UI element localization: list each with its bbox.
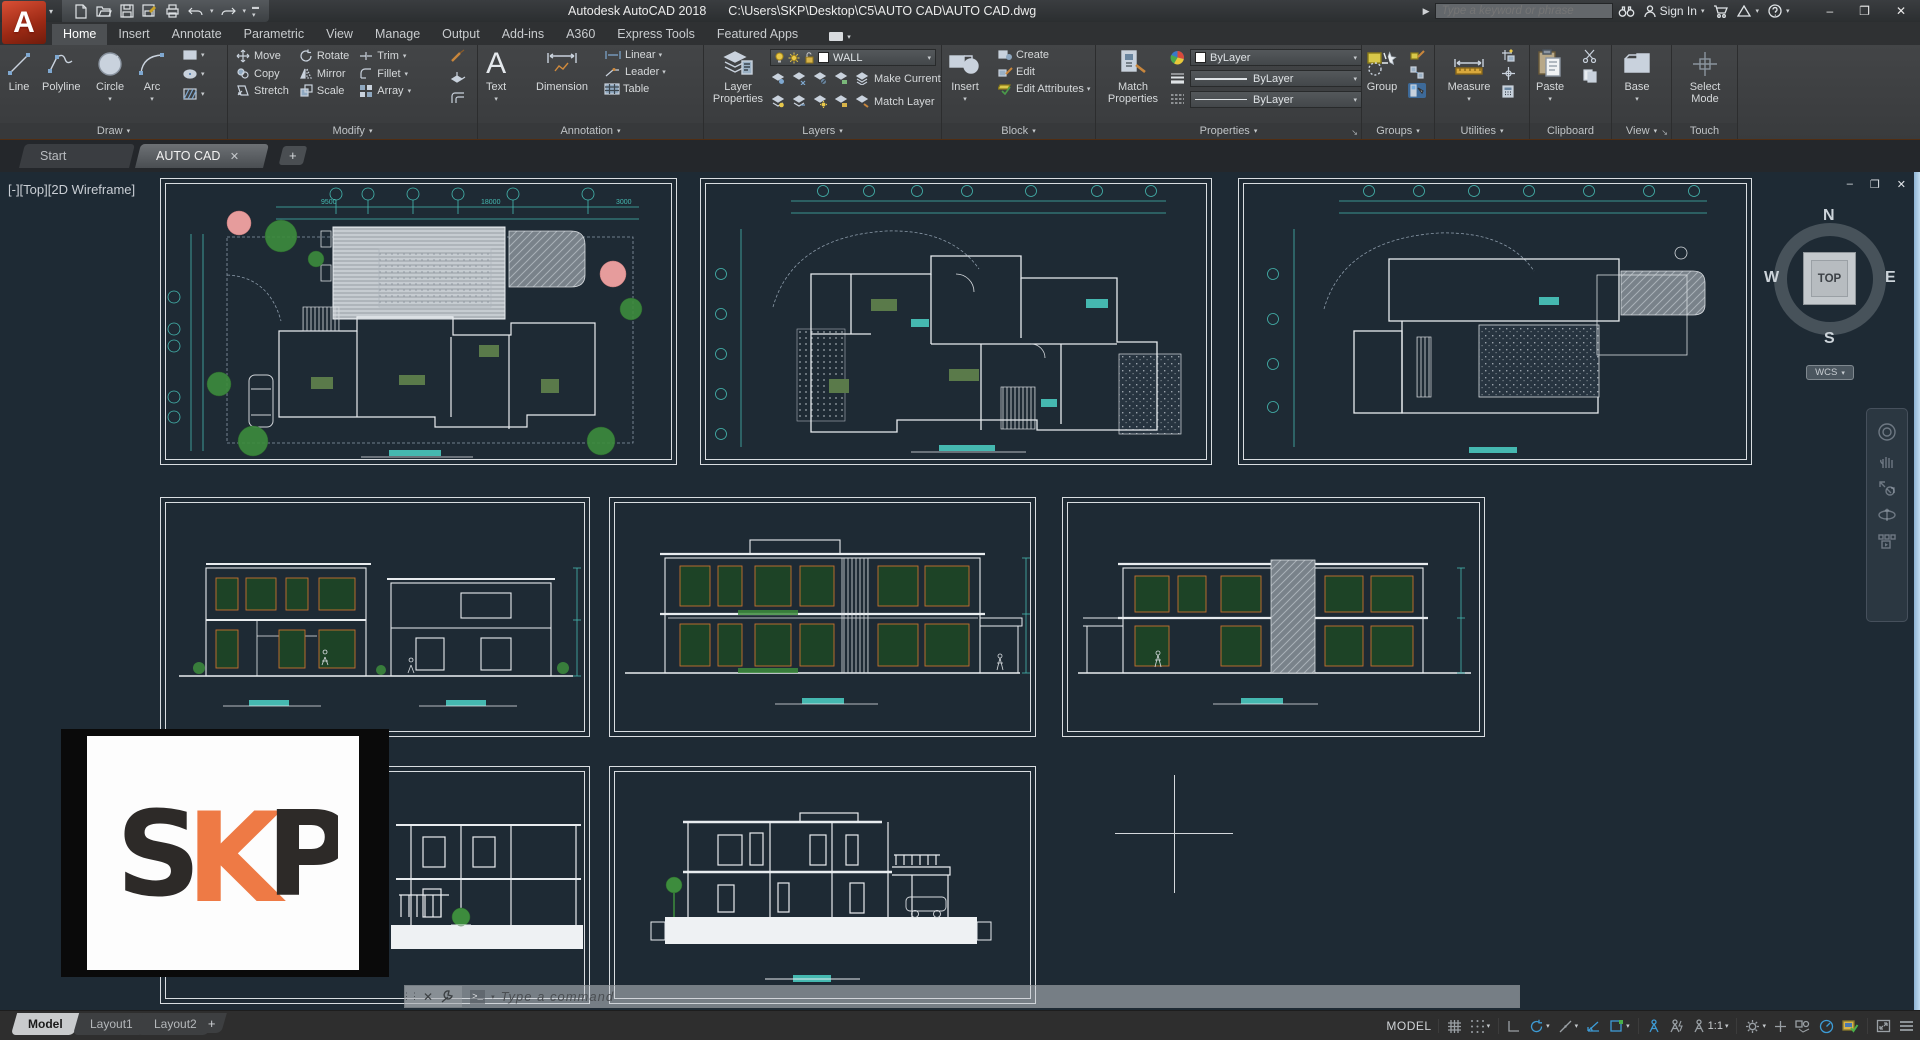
hatch-icon [182, 87, 198, 101]
ellipse-icon [182, 68, 198, 80]
color-wheel-icon [1170, 50, 1185, 65]
plus-icon [1774, 1020, 1787, 1033]
copy-clip-button[interactable] [1583, 69, 1597, 83]
open-file-button[interactable] [95, 3, 112, 19]
redo-icon [220, 5, 236, 18]
linear-label: Linear [625, 49, 656, 61]
lineweight-icon [1170, 72, 1185, 85]
tab-home[interactable]: Home [52, 24, 107, 45]
measure-label: Measure [1448, 81, 1491, 93]
panel-properties-label[interactable]: Properties▾↘ [1096, 123, 1361, 139]
site-plan-drawing: 9500 18000 3000 [161, 179, 678, 466]
panel-groups: Group Groups▾ [1362, 45, 1435, 139]
clean-screen-button[interactable] [1876, 1019, 1891, 1033]
linetype-icon [1170, 93, 1185, 106]
pan-hand-icon[interactable] [1877, 452, 1897, 470]
grid-icon [1447, 1019, 1462, 1034]
create-block-label: Create [1016, 49, 1049, 61]
command-input[interactable]: >_ ▾ Type a command [462, 989, 622, 1004]
search-expand-button[interactable]: ▶ [1423, 6, 1430, 17]
clipboard-label-text: Clipboard [1547, 125, 1594, 137]
trim-button[interactable]: Trim▾ [359, 49, 411, 63]
edit-block-label: Edit [1016, 66, 1035, 78]
circle-icon [96, 48, 124, 80]
line-button[interactable]: Line [6, 48, 32, 93]
frame-first-floor-plan[interactable] [1238, 178, 1752, 465]
layer-isolate-button[interactable] [772, 72, 785, 85]
annotation-scale-button[interactable]: 1:1▾ [1692, 1019, 1729, 1034]
group-button[interactable]: Group [1366, 48, 1398, 93]
drawing-canvas[interactable]: [-][Top][2D Wireframe] – ❐ ✕ [0, 172, 1920, 1010]
rotate-label: Rotate [317, 50, 349, 62]
copy-button[interactable]: Copy [236, 67, 289, 80]
ungroup-button[interactable] [1410, 66, 1425, 79]
measure-button[interactable]: Measure▾ [1443, 48, 1495, 106]
layer-lock-icon [835, 72, 848, 85]
window-minimize-button[interactable]: – [1826, 4, 1833, 18]
group-label: Group [1367, 81, 1398, 93]
ribbon-display-toggle[interactable]: ▾ [823, 30, 857, 45]
circle-button[interactable]: Circle▾ [96, 48, 124, 106]
cart-icon [1713, 5, 1728, 18]
offset-button[interactable] [450, 91, 466, 105]
customization-menu-icon [1899, 1020, 1914, 1032]
panel-touch-label[interactable]: Touch [1672, 123, 1737, 139]
panel-modify-label[interactable]: Modify▾ [228, 123, 477, 139]
command-bar-grip[interactable]: ⋮⋮ [405, 986, 415, 1007]
layout2-tab-label: Layout2 [154, 1017, 197, 1031]
drawing-minimize-button[interactable]: – [1847, 178, 1853, 191]
id-point-button[interactable] [1502, 67, 1515, 80]
viewcube-west[interactable]: W [1764, 269, 1779, 287]
ungroup-icon [1410, 66, 1425, 79]
lineweight-dropdown[interactable]: ByLayer▾ [1190, 70, 1362, 87]
panel-touch: Select Mode Touch [1672, 45, 1738, 139]
clean-screen-icon [1876, 1019, 1891, 1033]
svg-text:9500: 9500 [321, 199, 337, 206]
properties-dialog-launcher[interactable]: ↘ [1351, 128, 1358, 137]
edit-attributes-label: Edit Attributes [1016, 83, 1084, 95]
base-view-icon [1622, 48, 1652, 80]
viewcube-east[interactable]: E [1885, 269, 1896, 287]
table-button[interactable]: Table [604, 83, 649, 95]
explode-icon [450, 70, 466, 84]
dimension-label: Dimension [536, 81, 588, 93]
create-block-icon [998, 49, 1013, 61]
layer-thaw-sun-button[interactable] [814, 95, 827, 108]
rotate-button[interactable]: Rotate [299, 49, 349, 63]
copy-pages-icon [1583, 69, 1597, 83]
select-mode-label: Select Mode [1680, 81, 1730, 105]
layer-freeze-icon [793, 72, 806, 85]
table-icon [604, 83, 620, 95]
panel-draw-label[interactable]: Draw▾ [0, 123, 227, 139]
panel-layers: Layer Properties WALL ▾ Make Current [704, 45, 942, 139]
wcs-label: WCS [1815, 367, 1837, 378]
stretch-button[interactable]: Stretch [236, 84, 289, 97]
tab-manage[interactable]: Manage [364, 24, 431, 45]
move-label: Move [254, 50, 281, 62]
match-properties-button[interactable]: Match Properties [1102, 48, 1164, 105]
line-label: Line [9, 81, 30, 93]
application-menu-button[interactable]: A [2, 1, 46, 44]
linear-icon [604, 50, 622, 60]
panel-groups-label[interactable]: Groups▾ [1362, 123, 1434, 139]
skp-logo-overlay: S K P [61, 729, 389, 977]
isodraft-icon [1558, 1019, 1573, 1034]
status-bar: Model Layout1 Layout2 + MODEL ▾ ▾ ▾ ▾ 1:… [0, 1010, 1920, 1040]
frame-site-plan[interactable]: 9500 18000 3000 [160, 178, 677, 465]
dimension-button[interactable]: Dimension [526, 48, 598, 93]
layout1-tab-label: Layout1 [90, 1017, 133, 1031]
line-icon [6, 48, 32, 80]
tab-annotate[interactable]: Annotate [161, 24, 233, 45]
quick-select-icon [1501, 49, 1515, 62]
make-current-button[interactable]: Make Current [856, 72, 941, 85]
paste-label: Paste [1536, 81, 1564, 93]
base-label: Base [1624, 81, 1649, 93]
match-properties-label: Match Properties [1102, 81, 1164, 105]
layer-properties-label: Layer Properties [710, 81, 766, 105]
layer-off-button[interactable] [814, 72, 827, 85]
ribbon: Line Polyline Circle▾ Arc▾ ▾ ▾ ▾ Draw▾ [0, 45, 1920, 140]
object-snap-tracking-toggle[interactable] [1586, 1019, 1601, 1033]
elevation-c-drawing [1063, 498, 1486, 738]
group-edit-button[interactable] [1410, 49, 1425, 62]
layer-properties-icon [722, 48, 754, 80]
measure-icon [1452, 48, 1486, 80]
move-button[interactable]: Move [236, 49, 289, 63]
scale-button[interactable]: Scale [299, 84, 349, 97]
svg-text:18000: 18000 [481, 199, 501, 206]
drawing-restore-button[interactable]: ❐ [1870, 178, 1880, 191]
ellipse-button[interactable]: ▾ [182, 68, 205, 80]
copy-icon [236, 67, 250, 80]
rotate-icon [299, 49, 313, 63]
lineweight-value: ByLayer [1253, 73, 1293, 85]
skp-logo: S K P [108, 773, 338, 933]
layer-thaw-icon [788, 52, 800, 64]
search-button[interactable] [1618, 5, 1635, 18]
arc-icon [138, 48, 166, 80]
layer-on-all-icon [772, 95, 785, 108]
annotation-autoscale-toggle[interactable] [1669, 1019, 1684, 1034]
scissors-icon [1582, 49, 1597, 63]
redo-dropdown[interactable]: ▾ [243, 7, 247, 15]
undo-dropdown[interactable]: ▾ [210, 7, 214, 15]
help-search-input[interactable] [1435, 3, 1613, 19]
stretch-label: Stretch [254, 85, 289, 97]
layer-on-icon [775, 52, 784, 64]
file-path: C:\Users\SKP\Desktop\C5\AUTO CAD\AUTO CA… [728, 4, 1036, 18]
help-button[interactable]: ▾ [1768, 4, 1790, 18]
sign-in-button[interactable]: Sign In▾ [1644, 4, 1705, 18]
isodraft-toggle[interactable]: ▾ [1558, 1019, 1579, 1034]
user-icon [1644, 5, 1656, 18]
title-bar: ▾ ▾ ▬▾ Autodesk AutoCAD 2018 C:\Users\SK… [0, 0, 1920, 22]
new-drawing-tab-button[interactable]: + [279, 146, 308, 165]
application-menu-caret: ▾ [49, 7, 53, 16]
insert-label: Insert [951, 81, 979, 93]
isolate-objects-icon [1795, 1019, 1811, 1033]
fillet-button[interactable]: Fillet▾ [359, 67, 411, 80]
panel-clipboard-label[interactable]: Clipboard [1530, 123, 1611, 139]
wcs-dropdown[interactable]: WCS▾ [1806, 365, 1854, 380]
layer-color-swatch [818, 52, 829, 63]
model-space-button[interactable]: MODEL [1386, 1019, 1438, 1033]
tab-parametric[interactable]: Parametric [233, 24, 315, 45]
linetype-dropdown[interactable]: ByLayer▾ [1190, 91, 1362, 108]
save-icon [120, 4, 134, 18]
frame-section-b[interactable] [609, 766, 1036, 1004]
viewport-controls-label[interactable]: [-][Top][2D Wireframe] [8, 182, 135, 197]
grid-display-toggle[interactable] [1447, 1019, 1462, 1034]
mirror-label: Mirror [317, 68, 346, 80]
command-line-bar[interactable]: ⋮⋮ ✕ >_ ▾ Type a command [404, 985, 1520, 1008]
layer-lock-button[interactable] [835, 72, 848, 85]
panel-block-label[interactable]: Block▾ [942, 123, 1095, 139]
tab-view[interactable]: View [315, 24, 364, 45]
app-store-button[interactable] [1713, 5, 1728, 18]
snap-mode-toggle[interactable]: ▾ [1470, 1019, 1491, 1034]
text-button[interactable]: A Text▾ [486, 48, 506, 106]
skp-right-bar [359, 729, 389, 977]
tab-addins[interactable]: Add-ins [491, 24, 555, 45]
customization-button[interactable] [1899, 1020, 1914, 1032]
group-selection-toggle[interactable] [1408, 83, 1426, 98]
rectangle-icon [182, 49, 198, 61]
viewcube-north[interactable]: N [1823, 207, 1835, 225]
save-as-icon [142, 4, 157, 18]
frame-elevation-b[interactable] [609, 497, 1036, 737]
annotation-monitor-button[interactable] [1774, 1020, 1787, 1033]
trim-label: Trim [377, 50, 399, 62]
panel-view-label[interactable]: View▾↘ [1612, 123, 1671, 139]
hatch-button[interactable]: ▾ [182, 87, 205, 101]
model-tab-label: Model [28, 1017, 63, 1031]
polyline-label: Polyline [42, 81, 81, 93]
edit-attributes-button[interactable]: Edit Attributes▾ [998, 83, 1090, 95]
panel-block: Insert▾ Create Edit Edit Attributes▾ Blo… [942, 45, 1096, 139]
insert-button[interactable]: Insert▾ [948, 48, 982, 106]
printer-icon [165, 4, 180, 18]
frame-elevation-c[interactable] [1062, 497, 1485, 737]
circle-label: Circle [96, 81, 124, 93]
object-color-dropdown[interactable]: ByLayer▾ [1190, 49, 1362, 66]
new-file-icon [74, 4, 88, 19]
graphics-performance-button[interactable] [1819, 1019, 1834, 1034]
command-bar-close-icon[interactable]: ✕ [423, 990, 433, 1004]
canvas-right-scroll-strip[interactable] [1914, 172, 1920, 1010]
frame-elevation-a[interactable] [160, 497, 590, 737]
panel-annotation-label[interactable]: Annotation▾ [478, 123, 703, 139]
annotation-visibility-icon [1647, 1019, 1661, 1034]
trim-icon [359, 50, 373, 62]
open-folder-icon [96, 4, 112, 18]
make-current-icon [856, 72, 870, 85]
svg-text:P: P [266, 785, 338, 923]
mirror-icon [299, 67, 313, 80]
new-file-button[interactable] [72, 3, 89, 19]
layer-thaw-all-button[interactable] [793, 95, 806, 108]
layer-unlock-icon [804, 52, 814, 64]
viewcube-top-face[interactable]: TOP [1803, 252, 1856, 305]
elevation-b-drawing [610, 498, 1037, 738]
file-tab-drawing[interactable]: AUTO CAD✕ [135, 144, 269, 168]
select-mode-button[interactable]: Select Mode [1680, 48, 1730, 105]
frame-ground-floor-plan[interactable] [700, 178, 1212, 465]
id-point-icon [1502, 67, 1515, 80]
layer-freeze-button[interactable] [793, 72, 806, 85]
text-label: Text [486, 81, 506, 93]
viewcube-top-label: TOP [1818, 273, 1841, 285]
navigation-wheel-icon[interactable] [1876, 421, 1898, 443]
panel-clipboard: Paste▾ Clipboard [1530, 45, 1612, 139]
linear-button[interactable]: Linear▾ [604, 49, 662, 61]
workspace-switching-button[interactable]: ▾ [1745, 1019, 1766, 1034]
drawing-tab-close-icon[interactable]: ✕ [230, 150, 239, 163]
quick-access-toolbar: ▾ ▾ ▬▾ [62, 0, 269, 22]
zoom-extents-icon[interactable] [1877, 479, 1897, 497]
edit-block-button[interactable]: Edit [998, 66, 1035, 78]
layer-dropdown-caret: ▾ [927, 54, 931, 62]
command-prompt-icon: >_ [470, 990, 485, 1004]
array-label: Array [377, 85, 403, 97]
leader-button[interactable]: Leader▾ [604, 66, 666, 78]
panel-utilities: Measure▾ Utilities▾ [1435, 45, 1530, 139]
ortho-mode-toggle[interactable] [1507, 1019, 1521, 1033]
mirror-button[interactable]: Mirror [299, 67, 349, 80]
model-tab[interactable]: Model [11, 1013, 80, 1035]
layer-on-all-button[interactable] [772, 95, 785, 108]
leader-label: Leader [625, 66, 659, 78]
cut-button[interactable] [1582, 49, 1597, 63]
match-properties-icon [1118, 48, 1148, 80]
panel-draw: Line Polyline Circle▾ Arc▾ ▾ ▾ ▾ Draw▾ [0, 45, 228, 139]
array-button[interactable]: Array▾ [359, 84, 411, 97]
qat-customize-dropdown[interactable]: ▬▾ [252, 4, 259, 19]
layer-properties-button[interactable]: Layer Properties [710, 48, 766, 105]
erase-button[interactable] [450, 49, 466, 63]
draw-label-text: Draw [97, 125, 123, 137]
viewcube-south[interactable]: S [1824, 330, 1835, 348]
rectangle-button[interactable]: ▾ [182, 49, 205, 61]
svg-text:3000: 3000 [616, 199, 632, 206]
start-tab-label: Start [40, 149, 66, 163]
insert-icon [948, 48, 982, 80]
layer-dropdown[interactable]: WALL ▾ [770, 49, 936, 66]
polar-tracking-toggle[interactable]: ▾ [1529, 1019, 1550, 1034]
window-restore-button[interactable]: ❐ [1859, 4, 1870, 18]
layers-label-text: Layers [802, 125, 835, 137]
explode-button[interactable] [450, 70, 466, 84]
arc-button[interactable]: Arc▾ [138, 48, 166, 106]
edit-block-icon [998, 66, 1013, 78]
save-button[interactable] [118, 3, 135, 19]
fillet-label: Fillet [377, 68, 400, 80]
make-current-label: Make Current [874, 73, 941, 85]
object-color-value: ByLayer [1210, 52, 1349, 64]
drawing-close-button[interactable]: ✕ [1897, 178, 1906, 191]
osnap-icon [1609, 1019, 1624, 1033]
polar-tracking-icon [1529, 1019, 1544, 1034]
quick-select-button[interactable] [1501, 49, 1515, 62]
stretch-icon [236, 84, 250, 97]
annotation-visibility-toggle[interactable] [1647, 1019, 1661, 1034]
panel-utilities-label[interactable]: Utilities▾ [1435, 123, 1529, 139]
quick-calc-button[interactable] [1502, 85, 1514, 98]
file-tab-bar: Start AUTO CAD✕ + [0, 140, 1920, 172]
file-tab-start[interactable]: Start [19, 144, 135, 168]
view-label-text: View [1626, 125, 1650, 137]
new-layout-button[interactable]: + [197, 1013, 227, 1033]
isolate-objects-button[interactable] [1795, 1019, 1811, 1033]
paste-button[interactable]: Paste▾ [1536, 48, 1564, 106]
undo-button[interactable] [187, 3, 204, 19]
command-placeholder: Type a command [501, 989, 614, 1004]
panel-layers-label[interactable]: Layers▾ [704, 123, 941, 139]
command-customize-wrench-icon[interactable] [440, 990, 454, 1003]
binoculars-icon [1618, 5, 1635, 18]
plot-button[interactable] [164, 3, 181, 19]
polyline-button[interactable]: Polyline [42, 48, 81, 93]
erase-brush-icon [450, 49, 466, 63]
calculator-icon [1502, 85, 1514, 98]
save-as-button[interactable] [141, 3, 158, 19]
view-dialog-launcher[interactable]: ↘ [1661, 128, 1668, 137]
drawing-window-controls: – ❐ ✕ [1847, 178, 1906, 191]
app-title: Autodesk AutoCAD 2018 [568, 4, 706, 18]
modify-label-text: Modify [333, 125, 365, 137]
current-layer-name: WALL [833, 52, 923, 64]
a360-share-button[interactable]: ▾ [1737, 5, 1759, 17]
showmotion-icon[interactable] [1877, 533, 1897, 549]
recent-commands-caret[interactable]: ▾ [491, 993, 495, 1001]
touch-label-text: Touch [1690, 125, 1719, 137]
titlebar-right: ▶ Sign In▾ ▾ ▾ – ❐ ✕ [1423, 0, 1914, 22]
trusted-dwg-indicator[interactable] [1842, 1019, 1859, 1034]
window-close-button[interactable]: ✕ [1896, 4, 1906, 18]
ortho-icon [1507, 1019, 1521, 1033]
panel-properties: Match Properties ByLayer▾ ByLayer▾ ByLay… [1096, 45, 1362, 139]
tab-insert[interactable]: Insert [107, 24, 160, 45]
layer-unlock-all-button[interactable] [835, 95, 848, 108]
tab-express-tools[interactable]: Express Tools [606, 24, 706, 45]
object-snap-toggle[interactable]: ▾ [1609, 1019, 1630, 1033]
scale-label: Scale [317, 85, 345, 97]
text-icon: A [486, 48, 506, 80]
paste-icon [1537, 48, 1563, 80]
tab-output[interactable]: Output [431, 24, 491, 45]
fillet-icon [359, 67, 373, 80]
leader-icon [604, 67, 622, 78]
match-layer-button[interactable]: Match Layer [856, 95, 935, 108]
help-icon [1768, 4, 1782, 18]
ribbon-tab-bar: Home Insert Annotate Parametric View Man… [0, 22, 1920, 45]
base-button[interactable]: Base▾ [1622, 48, 1652, 106]
create-block-button[interactable]: Create [998, 49, 1049, 61]
orbit-icon[interactable] [1877, 506, 1897, 524]
arc-label: Arc [144, 81, 161, 93]
tab-a360[interactable]: A360 [555, 24, 606, 45]
osnap-tracking-icon [1586, 1019, 1601, 1033]
edit-attributes-icon [998, 83, 1013, 95]
block-label-text: Block [1001, 125, 1028, 137]
redo-button[interactable] [220, 3, 237, 19]
tab-featured-apps[interactable]: Featured Apps [706, 24, 809, 45]
graphics-performance-icon [1819, 1019, 1834, 1034]
group-edit-icon [1410, 49, 1425, 62]
